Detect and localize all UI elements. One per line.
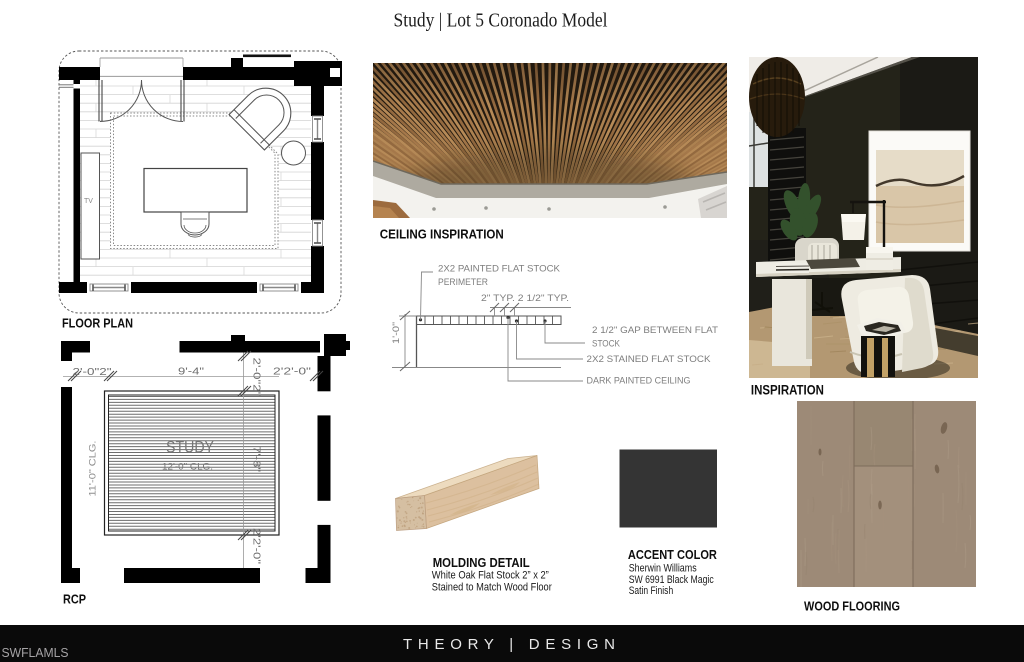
svg-text:1'-0": 1'-0" bbox=[391, 322, 402, 344]
svg-text:2'2'-0": 2'2'-0" bbox=[251, 528, 263, 564]
svg-text:CEILING INSPIRATION: CEILING INSPIRATION bbox=[380, 227, 504, 242]
svg-text:STUDY: STUDY bbox=[166, 439, 214, 457]
svg-text:12'-0" CLG.: 12'-0" CLG. bbox=[162, 462, 213, 473]
svg-text:2X2 STAINED FLAT STOCK: 2X2 STAINED FLAT STOCK bbox=[587, 354, 712, 365]
svg-text:SW 6991 Black Magic: SW 6991 Black Magic bbox=[629, 574, 714, 586]
svg-text:SWFLAMLS: SWFLAMLS bbox=[2, 646, 69, 660]
svg-text:PERIMETER: PERIMETER bbox=[438, 277, 488, 288]
svg-text:Study | Lot 5 Coronado Model: Study | Lot 5 Coronado Model bbox=[394, 11, 609, 32]
svg-text:Stained to Match Wood Floor: Stained to Match Wood Floor bbox=[432, 581, 552, 593]
svg-text:Satin Finish: Satin Finish bbox=[629, 585, 674, 597]
svg-text:Sherwin Williams: Sherwin Williams bbox=[629, 562, 697, 574]
svg-text:2X2 PAINTED FLAT STOCK: 2X2 PAINTED FLAT STOCK bbox=[438, 264, 561, 275]
svg-text:2'2'-0": 2'2'-0" bbox=[273, 366, 311, 378]
svg-text:RCP: RCP bbox=[63, 592, 86, 606]
svg-text:TV: TV bbox=[84, 198, 93, 205]
svg-text:2'-0"2": 2'-0"2" bbox=[73, 366, 112, 378]
svg-text:WOOD FLOORING: WOOD FLOORING bbox=[804, 599, 900, 614]
svg-text:ACCENT COLOR: ACCENT COLOR bbox=[628, 547, 718, 562]
svg-text:7'-8": 7'-8" bbox=[251, 446, 263, 472]
svg-text:INSPIRATION: INSPIRATION bbox=[751, 383, 824, 398]
svg-text:2'-0"2": 2'-0"2" bbox=[251, 358, 263, 397]
svg-text:11'-0" CLG.: 11'-0" CLG. bbox=[88, 441, 99, 497]
svg-text:STOCK: STOCK bbox=[592, 339, 621, 350]
svg-text:White Oak Flat Stock 2” x 2”: White Oak Flat Stock 2” x 2” bbox=[432, 570, 549, 582]
svg-text:FLOOR PLAN: FLOOR PLAN bbox=[62, 317, 133, 331]
svg-text:9'-4": 9'-4" bbox=[178, 366, 204, 378]
svg-text:2" TYP. 2 1/2" TYP.: 2" TYP. 2 1/2" TYP. bbox=[481, 293, 569, 304]
svg-text:MOLDING DETAIL: MOLDING DETAIL bbox=[433, 555, 530, 570]
svg-text:2 1/2" GAP BETWEEN FLAT: 2 1/2" GAP BETWEEN FLAT bbox=[592, 325, 718, 336]
svg-text:DARK PAINTED CEILING: DARK PAINTED CEILING bbox=[587, 376, 691, 387]
